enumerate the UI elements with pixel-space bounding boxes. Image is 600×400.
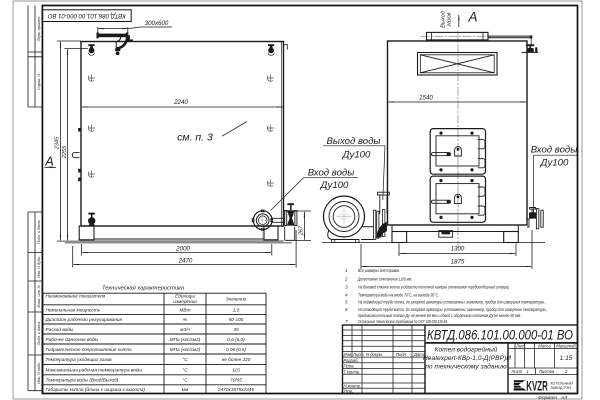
svg-text:Лист: Лист: [352, 352, 364, 357]
svg-text:KVZR: KVZR: [526, 377, 548, 393]
svg-text:Утв.: Утв.: [344, 389, 354, 394]
svg-text:Дата: Дата: [413, 352, 426, 357]
svg-text:Подп. и дата: Подп. и дата: [37, 220, 41, 244]
svg-text:Heatexpert-КВр-1,0-Д(РВР)И: Heatexpert-КВр-1,0-Д(РВР)И: [423, 355, 511, 362]
svg-text:Формат А3: Формат А3: [538, 395, 567, 400]
svg-text:Подп. и дата: Подп. и дата: [37, 322, 41, 346]
svg-text:4: 4: [345, 293, 348, 298]
svg-text:267: 267: [298, 225, 304, 236]
svg-text:1: 1: [527, 369, 529, 374]
svg-text:Справ. N: Справ. N: [37, 74, 41, 90]
svg-text:6: 6: [345, 307, 348, 312]
svg-text:не более 220: не более 220: [222, 357, 251, 362]
svg-text:Рабочее давление воды: Рабочее давление воды: [46, 337, 99, 342]
svg-text:Разраб.: Разраб.: [344, 358, 359, 363]
svg-text:Остальные технические требован: Остальные технические требования по ОСТ …: [358, 319, 448, 324]
svg-text:2470: 2470: [178, 257, 193, 264]
svg-text:5: 5: [345, 300, 348, 305]
svg-text:ЗАВОД РЭП: ЗАВОД РЭП: [551, 386, 572, 390]
svg-text:2: 2: [344, 276, 348, 281]
svg-text:1,0: 1,0: [233, 308, 240, 313]
svg-text:Значение: Значение: [226, 297, 247, 302]
svg-text:предохранительный клапан Ду не: предохранительный клапан Ду не менее 50 …: [358, 312, 521, 318]
svg-text:КВТД.086.101.00.000-01 ВО: КВТД.086.101.00.000-01 ВО: [427, 327, 573, 342]
svg-text:2345: 2345: [54, 136, 60, 150]
svg-text:0,6 (6,0): 0,6 (6,0): [227, 337, 245, 342]
svg-text:Ду100: Ду100: [320, 180, 349, 191]
svg-text:по техническому заданию: по техническому заданию: [425, 362, 507, 370]
svg-text:Расход воды: Расход воды: [46, 327, 74, 332]
svg-text:Максимальная рабочая температу: Максимальная рабочая температура воды: [46, 367, 143, 372]
svg-text:Габариты котла (длина х ширина: Габариты котла (длина х ширина х высота): [46, 387, 146, 392]
svg-text:50-100: 50-100: [229, 317, 244, 322]
svg-text:Перв. примен.: Перв. примен.: [37, 16, 41, 41]
svg-text:см. п. 3: см. п. 3: [177, 132, 213, 144]
svg-text:0,06 (0,6): 0,06 (0,6): [226, 347, 247, 352]
svg-text:Ду100: Ду100: [540, 157, 569, 168]
svg-text:115: 115: [232, 367, 240, 372]
svg-text:2255: 2255: [62, 145, 68, 159]
svg-text:Все размеры для справок.: Все размеры для справок.: [358, 268, 400, 273]
svg-text:Выход воды: Выход воды: [327, 136, 381, 147]
svg-text:МПа (кгс/см2): МПа (кгс/см2): [170, 337, 201, 342]
svg-text:измерения: измерения: [173, 299, 197, 304]
svg-text:N докум.: N докум.: [366, 352, 383, 357]
svg-text:Ду100: Ду100: [342, 150, 371, 161]
svg-text:мм: мм: [182, 387, 189, 392]
svg-text:МВт: МВт: [180, 308, 191, 313]
svg-text:Гидравлическое сопротивление к: Гидравлическое сопротивление котла: [46, 347, 133, 352]
svg-text:А: А: [44, 154, 53, 168]
svg-text:7: 7: [345, 319, 348, 324]
svg-text:Вход воды: Вход воды: [308, 167, 355, 178]
svg-text:Единицы: Единицы: [175, 294, 195, 299]
svg-text:Диапазон рабочего регулировани: Диапазон рабочего регулирования: [45, 317, 123, 322]
svg-text:Техническая характеристика: Техническая характеристика: [102, 286, 185, 292]
svg-text:1:15: 1:15: [560, 355, 573, 362]
svg-text:°С: °С: [182, 377, 188, 382]
svg-text:35: 35: [233, 327, 239, 332]
svg-text:1875: 1875: [451, 259, 465, 266]
svg-text:2470х1875х2345: 2470х1875х2345: [217, 387, 254, 392]
svg-text:Температура воды (Вход/Выход): Температура воды (Вход/Выход): [46, 377, 119, 382]
svg-text:Допустимые отклонения ±100 мм.: Допустимые отклонения ±100 мм.: [357, 276, 412, 281]
svg-text:Температура уходящих газов: Температура уходящих газов: [46, 357, 113, 362]
svg-text:На боковой стенке котла в обла: На боковой стенке котла в области топочн…: [358, 284, 510, 290]
svg-text:Инв. N подл.: Инв. N подл.: [37, 362, 41, 384]
svg-text:%: %: [183, 317, 187, 322]
svg-text:Лист: Лист: [511, 369, 523, 374]
svg-text:1300: 1300: [451, 246, 465, 253]
svg-text:Т.контр.: Т.контр.: [344, 369, 361, 374]
svg-text:м3/ч: м3/ч: [180, 327, 190, 332]
svg-text:КОТЕЛЬНЫЙ: КОТЕЛЬНЫЙ: [551, 382, 574, 386]
svg-text:Котел водогрейный: Котел водогрейный: [435, 346, 498, 354]
svg-text:На отводящей трубе котла, до з: На отводящей трубе котла, до запорной ар…: [358, 306, 547, 312]
svg-text:Масса: Масса: [538, 344, 551, 349]
svg-text:Температура воды на входе 70°С: Температура воды на входе 70°С, на выход…: [358, 293, 439, 298]
svg-text:Номинальная мощность: Номинальная мощность: [46, 308, 101, 313]
svg-text:70/95: 70/95: [230, 377, 242, 382]
svg-text:300х600: 300х600: [145, 20, 169, 27]
svg-text:КВТД.086.101.00.000-01 ВО: КВТД.086.101.00.000-01 ВО: [47, 12, 125, 18]
svg-text:Инв. N дубл.: Инв. N дубл.: [37, 256, 41, 278]
svg-text:А: А: [467, 10, 477, 25]
svg-text:Листов: Листов: [538, 369, 555, 374]
svg-text:Наименование показателя: Наименование показателя: [46, 294, 106, 299]
svg-text:2000: 2000: [175, 245, 190, 252]
svg-text:МПа (кгс/см2): МПа (кгс/см2): [170, 347, 201, 352]
svg-text:2240: 2240: [173, 99, 188, 106]
svg-text:°С: °С: [182, 357, 188, 362]
svg-text:газов: газов: [447, 12, 453, 26]
svg-text:Подп.: Подп.: [396, 352, 407, 357]
svg-text:3: 3: [345, 285, 348, 290]
svg-text:Лит.: Лит.: [515, 344, 526, 349]
svg-text:Вход воды: Вход воды: [531, 144, 578, 155]
svg-text:Изм.: Изм.: [344, 352, 353, 357]
svg-text:Пров.: Пров.: [344, 364, 355, 369]
svg-text:°С: °С: [182, 367, 188, 372]
svg-text:1: 1: [345, 268, 348, 273]
svg-text:Взам. инв. N: Взам. инв. N: [37, 285, 41, 307]
svg-text:1540: 1540: [419, 94, 433, 101]
svg-text:Масштаб: Масштаб: [556, 344, 576, 349]
svg-text:На подводящей трубе котла, до: На подводящей трубе котла, до запорной а…: [358, 299, 545, 305]
